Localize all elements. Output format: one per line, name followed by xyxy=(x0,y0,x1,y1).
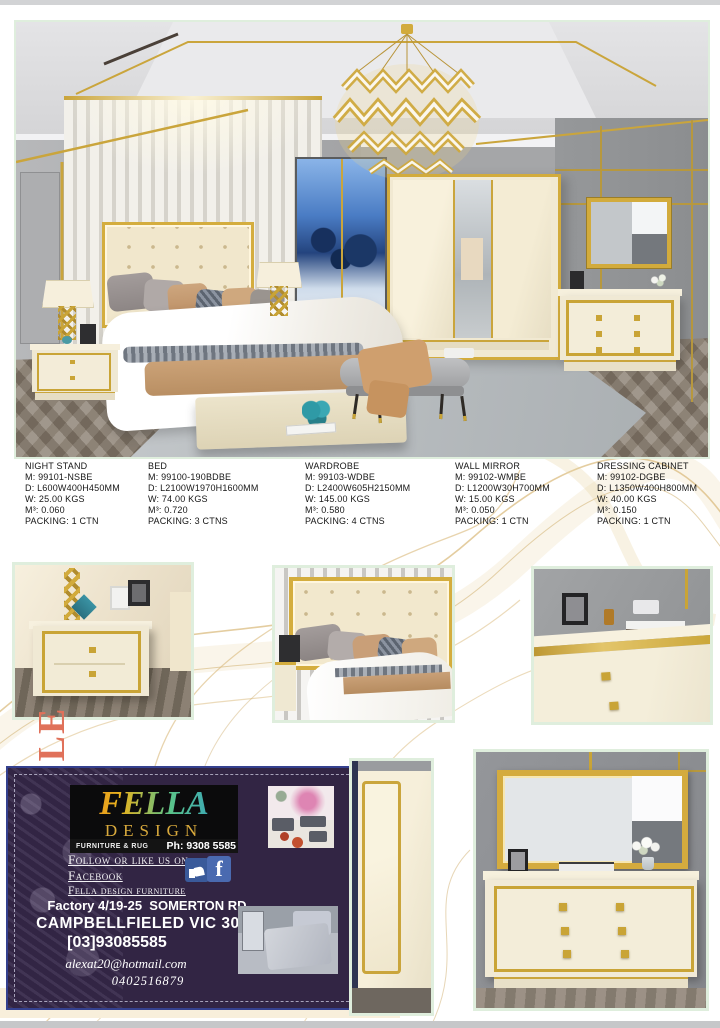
wall-mirror-illustration xyxy=(587,198,671,268)
sofa-thumbnail xyxy=(268,786,334,848)
bedroom-thumbnail xyxy=(238,906,338,974)
cabinet-handle xyxy=(596,331,602,337)
product-dimensions: D: L2100W1970H1600MM xyxy=(148,483,288,494)
photo-frame-decor xyxy=(562,593,588,625)
bottle-decor xyxy=(604,609,614,625)
product-weight: W: 25.00 KGS xyxy=(25,494,165,505)
spec-wardrobe: WARDROBE M: 99103-WDBE D: L2400W605H2150… xyxy=(305,461,445,527)
business-card: FELLA DESIGN FURNITURE & RUG Ph: 9308 55… xyxy=(8,768,360,1008)
product-model: M: 99102-WMBE xyxy=(455,472,595,483)
product-packing: PACKING: 3 CTNS xyxy=(148,516,288,527)
hero-photo xyxy=(14,20,710,459)
lamp-stand-left xyxy=(58,306,76,340)
nightstand-illustration xyxy=(32,344,118,400)
spec-dressing-cabinet: DRESSING CABINET M: 99102-DGBE D: L1350W… xyxy=(597,461,720,527)
product-packing: PACKING: 1 CTN xyxy=(597,516,720,527)
cabinet-handle xyxy=(596,347,602,353)
landline-number: [03]93085585 xyxy=(32,934,202,952)
product-name: NIGHT STAND xyxy=(25,461,165,472)
spec-night-stand: NIGHT STAND M: 99101-NSBE D: L600W400H45… xyxy=(25,461,165,527)
dresser-front xyxy=(531,644,713,725)
bench-throw xyxy=(366,379,410,418)
table-lamp-left xyxy=(42,280,94,308)
address-line1: Factory 4/19-25 SOMERTON RD xyxy=(32,898,262,913)
logo-strip: FURNITURE & RUG Ph: 9308 5585 xyxy=(70,839,238,853)
dark-edge xyxy=(352,761,358,1013)
drawer-handle xyxy=(609,701,619,710)
dresser-front xyxy=(494,886,695,972)
product-dimensions: D: L1350W400H800MM xyxy=(597,483,720,494)
product-packing: PACKING: 1 CTN xyxy=(455,516,595,527)
bed-shape xyxy=(264,923,332,970)
bed-edge xyxy=(170,592,191,671)
drawer-handle xyxy=(563,950,571,958)
drawer-divider xyxy=(54,663,125,665)
product-model: M: 99101-NSBE xyxy=(25,472,165,483)
photo-frame-decor xyxy=(80,324,96,344)
bottom-edge-bar xyxy=(0,1021,720,1028)
product-dimensions: D: L1200W30H700MM xyxy=(455,483,595,494)
top-edge-bar xyxy=(0,0,720,5)
product-weight: W: 145.00 KGS xyxy=(305,494,445,505)
sofa-shape xyxy=(272,818,294,830)
cabinet-handle xyxy=(634,331,640,337)
drawer-knob xyxy=(89,647,96,653)
product-weight: W: 74.00 KGS xyxy=(148,494,288,505)
product-packing: PACKING: 4 CTNS xyxy=(305,516,445,527)
cabinet-handle xyxy=(634,315,640,321)
sofa-shape xyxy=(300,816,326,827)
product-volume: M³: 0.060 xyxy=(25,505,165,516)
photo-floor xyxy=(352,988,431,1013)
wardrobe-door xyxy=(362,781,401,973)
dresser-closeup xyxy=(485,880,697,977)
drawer-frame xyxy=(42,631,141,693)
product-weight: W: 40.00 KGS xyxy=(597,494,720,505)
spec-bed: BED M: 99100-190BDBE D: L2100W1970H1600M… xyxy=(148,461,288,527)
vase-decor xyxy=(642,857,654,870)
lamp-base-left xyxy=(62,336,72,344)
product-volume: M³: 0.580 xyxy=(305,505,445,516)
product-model: M: 99102-DGBE xyxy=(597,472,720,483)
drawer-handle xyxy=(561,927,569,935)
email-address: alexat20@hotmail.com xyxy=(26,956,226,972)
product-volume: M³: 0.150 xyxy=(597,505,720,516)
brand-tagline: FURNITURE & RUG xyxy=(70,843,148,850)
nightstand-edge xyxy=(275,662,296,711)
product-dimensions: D: L600W400H450MM xyxy=(25,483,165,494)
drawer-knob xyxy=(89,671,96,677)
photo-floor xyxy=(476,988,706,1008)
flower-decor xyxy=(648,273,670,287)
nightstand-plinth xyxy=(35,392,115,400)
product-volume: M³: 0.720 xyxy=(148,505,288,516)
facebook-icon: f xyxy=(185,856,231,882)
box-decor xyxy=(633,600,659,614)
drawer-handle xyxy=(601,672,611,681)
brand-name: FELLA xyxy=(70,787,238,821)
product-model: M: 99103-WDBE xyxy=(305,472,445,483)
address-line2: CAMPBELLFIELED VIC 3061 xyxy=(32,915,262,933)
catalog-page: NIGHT STAND M: 99101-NSBE D: L600W400H45… xyxy=(0,0,720,1028)
gold-wall-line xyxy=(685,569,688,609)
nightstand-front xyxy=(33,626,149,696)
cabinet-handle xyxy=(596,315,602,321)
nightstand-body xyxy=(32,350,118,392)
drawer-handle xyxy=(559,903,567,911)
photo-frame-decor xyxy=(279,635,300,662)
sofa-shape xyxy=(309,831,327,842)
table-lamp-right xyxy=(256,262,302,288)
cabinet-top xyxy=(558,289,682,296)
dresser-top xyxy=(483,871,699,880)
lamp-stand-right xyxy=(270,286,288,316)
product-name: WALL MIRROR xyxy=(455,461,595,472)
wardrobe-illustration xyxy=(387,174,561,360)
product-packing: PACKING: 1 CTN xyxy=(25,516,165,527)
cabinet-plinth xyxy=(564,360,676,371)
nightstand-knob xyxy=(70,376,75,380)
cabinet-front xyxy=(566,300,674,356)
nightstand-knob xyxy=(70,360,75,364)
cabinet-body xyxy=(560,296,680,360)
product-volume: M³: 0.050 xyxy=(455,505,595,516)
facebook-like-icon xyxy=(185,858,209,882)
product-name: BED xyxy=(148,461,288,472)
cabinet-handle xyxy=(634,347,640,353)
facebook-f-icon: f xyxy=(207,856,231,882)
social-line: Facebook xyxy=(68,868,123,884)
social-line: Fella design furniture xyxy=(68,885,186,897)
drawer-handle xyxy=(621,950,629,958)
brand-logo: FELLA DESIGN FURNITURE & RUG Ph: 9308 55… xyxy=(70,785,238,853)
social-line: Follow or like us on xyxy=(68,852,188,868)
drawer-handle xyxy=(616,903,624,911)
dresser-top-photo xyxy=(531,566,713,725)
product-model: M: 99100-190BDBE xyxy=(148,472,288,483)
chandelier xyxy=(322,22,492,187)
product-weight: W: 15.00 KGS xyxy=(455,494,595,505)
wardrobe-door-right xyxy=(491,180,551,338)
photo-frame-decor xyxy=(508,849,528,873)
wardrobe-mirror xyxy=(455,180,491,338)
phone-number: Ph: 9308 5585 xyxy=(167,840,238,852)
wardrobe-door-left xyxy=(393,180,455,338)
vertical-sale-label: LE xyxy=(10,706,94,762)
mobile-number: 0402516879 xyxy=(68,974,228,989)
mirror-dresser-photo xyxy=(473,749,709,1011)
bed-photo xyxy=(272,565,455,723)
pot-decor xyxy=(280,832,289,841)
mirror-shape xyxy=(242,911,264,950)
folded-towels xyxy=(444,348,474,358)
brand-subtitle: DESIGN xyxy=(70,821,238,841)
wardrobe-photo xyxy=(349,758,434,1016)
pot-decor xyxy=(292,837,303,848)
photo-frame-decor xyxy=(570,271,584,289)
nightstand-front xyxy=(37,353,111,391)
photo-frame-decor xyxy=(128,580,150,606)
product-dimensions: D: L2400W605H2150MM xyxy=(305,483,445,494)
flower-decor xyxy=(628,836,662,858)
nightstand-photo xyxy=(12,562,194,720)
drawer-handle xyxy=(618,927,626,935)
product-name: DRESSING CABINET xyxy=(597,461,720,472)
dressing-cabinet-illustration xyxy=(560,289,680,371)
spec-wall-mirror: WALL MIRROR M: 99102-WMBE D: L1200W30H70… xyxy=(455,461,595,527)
product-name: WARDROBE xyxy=(305,461,445,472)
dresser-closeup xyxy=(531,623,713,725)
